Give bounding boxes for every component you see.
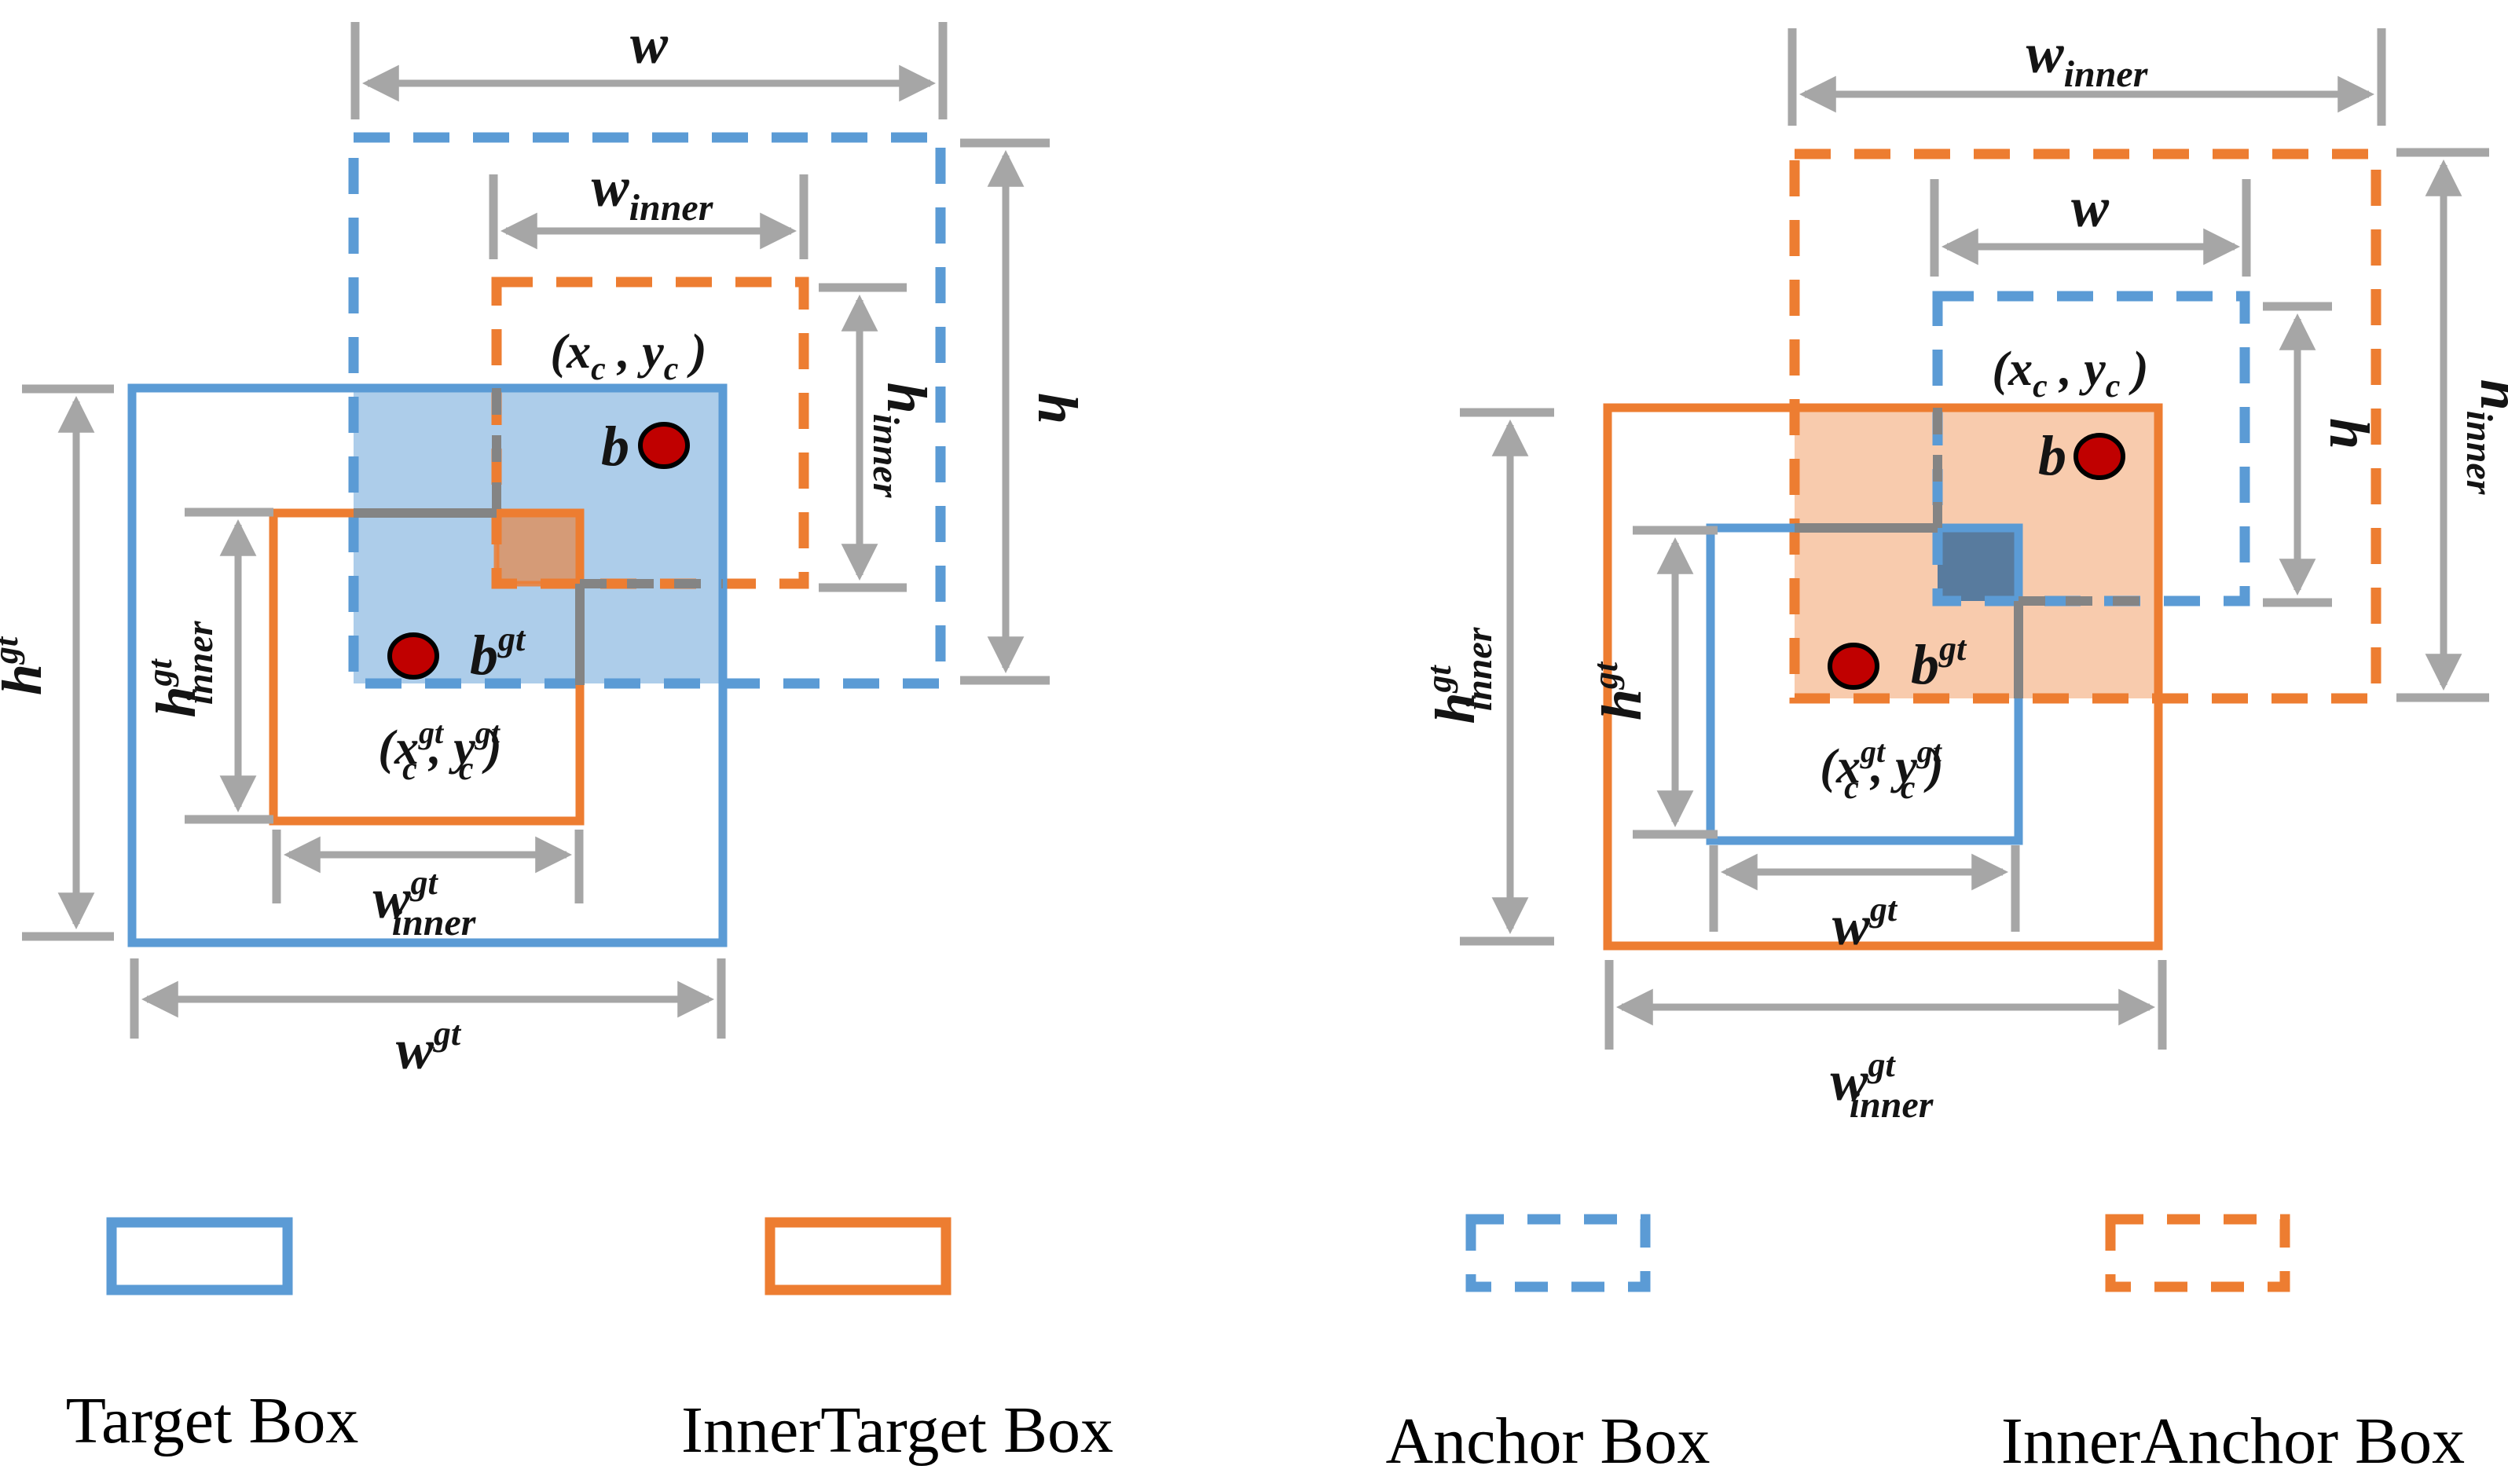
legend-swatch-inner-anchor-box: [2110, 1219, 2285, 1287]
label-h-inner: hinner: [865, 383, 938, 499]
label-h: h: [2318, 418, 2381, 449]
legend-label-target-box: Target Box: [66, 1384, 359, 1457]
label-center-target: (xgtc , ygtc ): [1820, 734, 1943, 806]
figure-inner-iou: w winner h hinner hgt: [0, 0, 2508, 1484]
label-h-gt-inner: hgtinner: [141, 620, 221, 717]
legend-label-inner-target-box: InnerTarget Box: [681, 1394, 1113, 1467]
legend-item-anchor-box: Anchor Box: [1386, 1219, 1710, 1478]
dimension-h: h: [960, 143, 1089, 680]
legend-label-inner-anchor-box: InnerAnchor Box: [2001, 1405, 2465, 1478]
label-h-inner: hinner: [2458, 379, 2508, 496]
dimension-h-inner: hinner: [819, 288, 938, 588]
dimension-h-gt-inner: hgtinner: [1420, 412, 1554, 941]
right-diagram: winner w hinner h hgtinner: [1420, 22, 2508, 1126]
label-h-gt: hgt: [0, 636, 53, 695]
legend-label-anchor-box: Anchor Box: [1386, 1405, 1710, 1478]
dimension-w-gt-inner: wgtinner: [1609, 960, 2162, 1126]
dimension-h-gt: hgt: [0, 389, 114, 936]
legend-swatch-anchor-box: [1471, 1219, 1645, 1287]
dimension-w-gt: wgt: [1714, 845, 2015, 957]
dimension-w: w: [1934, 176, 2246, 277]
label-b: b: [2038, 424, 2066, 487]
label-w-gt-inner: wgtinner: [373, 863, 477, 944]
legend-item-inner-anchor-box: InnerAnchor Box: [2001, 1219, 2465, 1478]
label-h-gt: hgt: [1586, 661, 1653, 720]
dimension-w-inner: winner: [493, 156, 804, 259]
label-center-anchor: (xc , yc ): [1992, 343, 2148, 405]
legend-swatch-inner-target-box: [770, 1222, 946, 1290]
legend-swatch-target-box: [112, 1222, 288, 1290]
dimension-w-inner: winner: [1792, 22, 2381, 126]
label-w-inner: winner: [592, 156, 714, 229]
label-h: h: [1026, 393, 1089, 424]
label-center-anchor: (xc , yc ): [550, 325, 706, 387]
dimension-w: w: [355, 13, 943, 119]
target-anchor-overlap: [1938, 528, 2018, 601]
center-point-b-gt: [390, 635, 437, 677]
dimension-h-gt-inner: hgtinner: [141, 512, 273, 819]
label-h-gt-inner: hgtinner: [1420, 626, 1500, 724]
inner-overlap: [497, 513, 580, 584]
label-b: b: [601, 415, 629, 478]
legend-item-target-box: Target Box: [66, 1222, 359, 1457]
center-point-b-gt: [1830, 645, 1877, 687]
label-w: w: [630, 13, 669, 75]
label-w-gt-inner: wgtinner: [1831, 1046, 1934, 1126]
dimension-h: h: [2263, 306, 2381, 603]
dimension-w-gt: wgt: [134, 958, 721, 1081]
label-w: w: [2071, 176, 2110, 239]
legend: Target Box InnerTarget Box Anchor Box In…: [66, 1219, 2466, 1478]
left-diagram: w winner h hinner hgt: [0, 13, 1089, 1081]
legend-item-inner-target-box: InnerTarget Box: [681, 1222, 1113, 1467]
center-point-b: [640, 424, 687, 467]
inner-iou-diagram: w winner h hinner hgt: [0, 0, 2508, 1484]
label-w-inner: winner: [2026, 22, 2149, 95]
dimension-h-inner: hinner: [2396, 152, 2508, 698]
label-w-gt: wgt: [396, 1014, 462, 1081]
label-center-target: (xgtc , ygtc ): [378, 715, 501, 787]
center-point-b: [2076, 435, 2123, 478]
dimension-w-gt-inner: wgtinner: [277, 830, 579, 944]
